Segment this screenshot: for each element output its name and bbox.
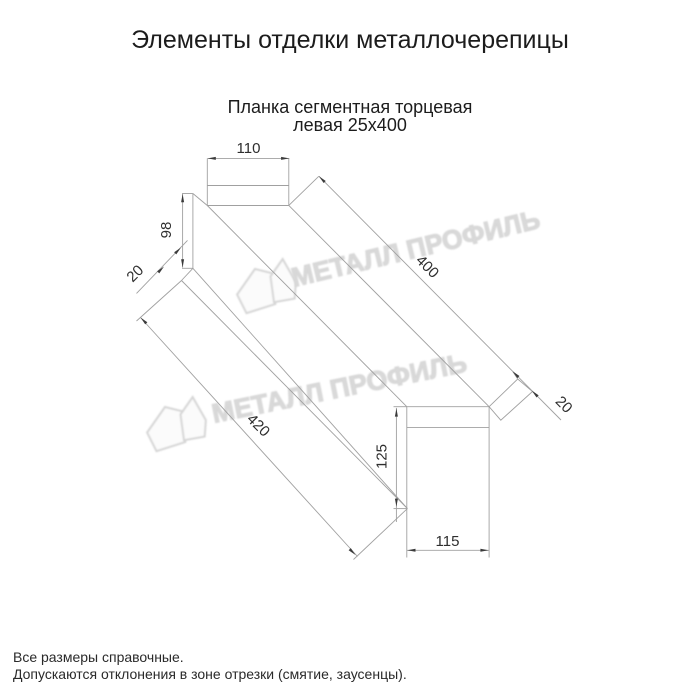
svg-text:Планка сегментная торцевая: Планка сегментная торцевая: [228, 97, 473, 117]
svg-text:Допускаются отклонения в зоне: Допускаются отклонения в зоне отрезки (с…: [13, 666, 407, 682]
svg-text:110: 110: [237, 140, 261, 157]
svg-text:125: 125: [374, 444, 391, 469]
svg-text:Все размеры справочные.: Все размеры справочные.: [13, 649, 184, 665]
svg-text:115: 115: [436, 533, 460, 550]
svg-text:Элементы отделки металлочерепи: Элементы отделки металлочерепицы: [131, 26, 569, 54]
svg-text:20: 20: [123, 262, 147, 286]
svg-text:левая 25х400: левая 25х400: [293, 115, 407, 135]
svg-text:МЕТАЛЛ ПРОФИЛЬ: МЕТАЛЛ ПРОФИЛЬ: [288, 204, 543, 293]
svg-text:98: 98: [158, 222, 175, 239]
svg-text:20: 20: [552, 393, 576, 417]
